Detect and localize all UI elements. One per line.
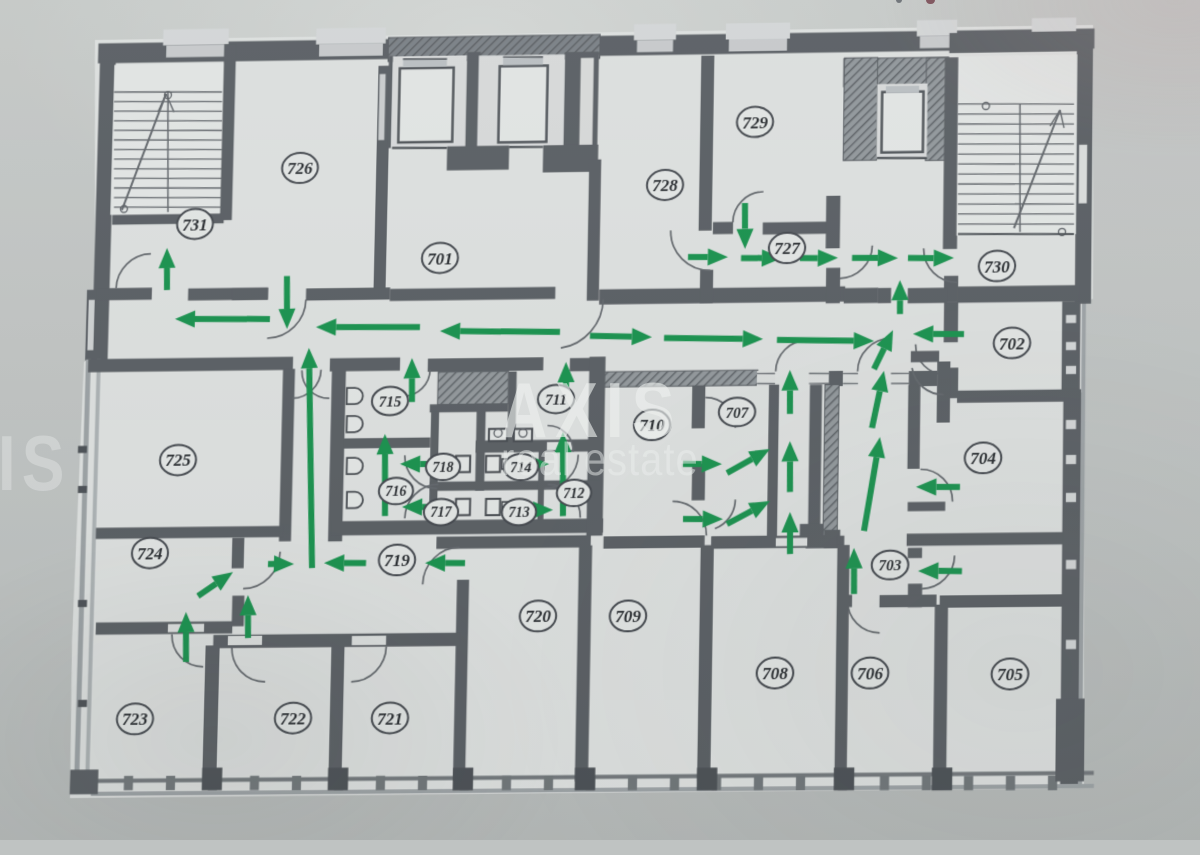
svg-text:701: 701 — [427, 249, 453, 269]
svg-text:729: 729 — [742, 113, 768, 133]
svg-text:727: 727 — [774, 239, 801, 259]
svg-text:713: 713 — [508, 506, 530, 522]
svg-text:703: 703 — [878, 558, 902, 575]
svg-text:724: 724 — [137, 544, 163, 564]
svg-text:730: 730 — [984, 257, 1011, 277]
svg-text:720: 720 — [525, 607, 552, 627]
svg-text:718: 718 — [432, 461, 453, 477]
svg-text:708: 708 — [762, 664, 789, 684]
svg-text:726: 726 — [287, 159, 313, 179]
svg-text:721: 721 — [377, 709, 403, 729]
svg-text:705: 705 — [997, 665, 1023, 685]
svg-text:728: 728 — [652, 176, 679, 196]
svg-text:723: 723 — [122, 710, 148, 730]
svg-text:716: 716 — [385, 485, 407, 501]
svg-text:731: 731 — [182, 215, 208, 235]
svg-text:719: 719 — [384, 551, 411, 571]
svg-text:712: 712 — [563, 487, 585, 503]
svg-text:722: 722 — [280, 709, 307, 729]
svg-text:709: 709 — [615, 607, 642, 627]
svg-text:725: 725 — [165, 451, 191, 471]
svg-text:704: 704 — [970, 449, 996, 469]
svg-text:717: 717 — [430, 506, 453, 522]
svg-text:715: 715 — [379, 394, 403, 411]
svg-text:702: 702 — [999, 334, 1026, 354]
svg-text:706: 706 — [857, 664, 884, 684]
svg-text:707: 707 — [726, 405, 750, 422]
